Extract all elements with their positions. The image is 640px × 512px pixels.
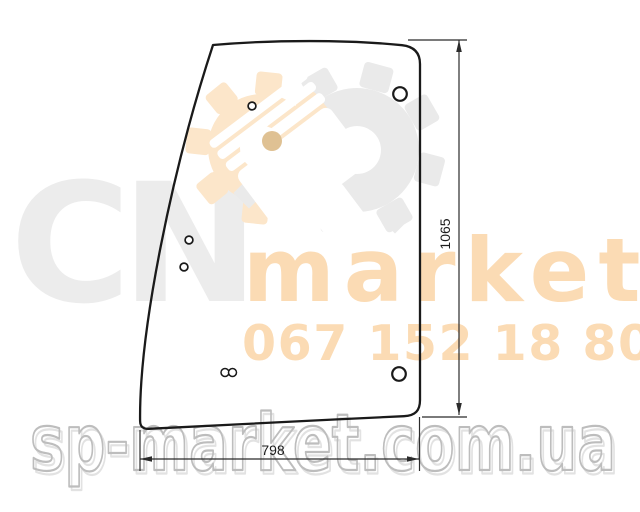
height-dim-label: 1065	[437, 218, 453, 249]
hole-top-right	[393, 87, 407, 101]
hole-left-lower	[180, 263, 188, 271]
hole-left-upper	[185, 236, 193, 244]
width-dim-label: 798	[261, 442, 285, 458]
site-watermark-outline: sp-market.com.ua	[30, 399, 616, 489]
site-watermark: sp-market.com.ua sp-market.com.ua	[30, 399, 619, 493]
hole-top-small	[248, 102, 256, 110]
piston-pin-icon	[262, 131, 282, 151]
hole-bottom-right	[392, 367, 406, 381]
slot-bottom	[221, 369, 237, 377]
watermark-layer: CN	[10, 42, 640, 492]
phone-watermark: 067 152 18 80	[242, 315, 640, 372]
product-technical-image: CN	[0, 0, 640, 512]
arrow-up-icon	[456, 40, 462, 52]
